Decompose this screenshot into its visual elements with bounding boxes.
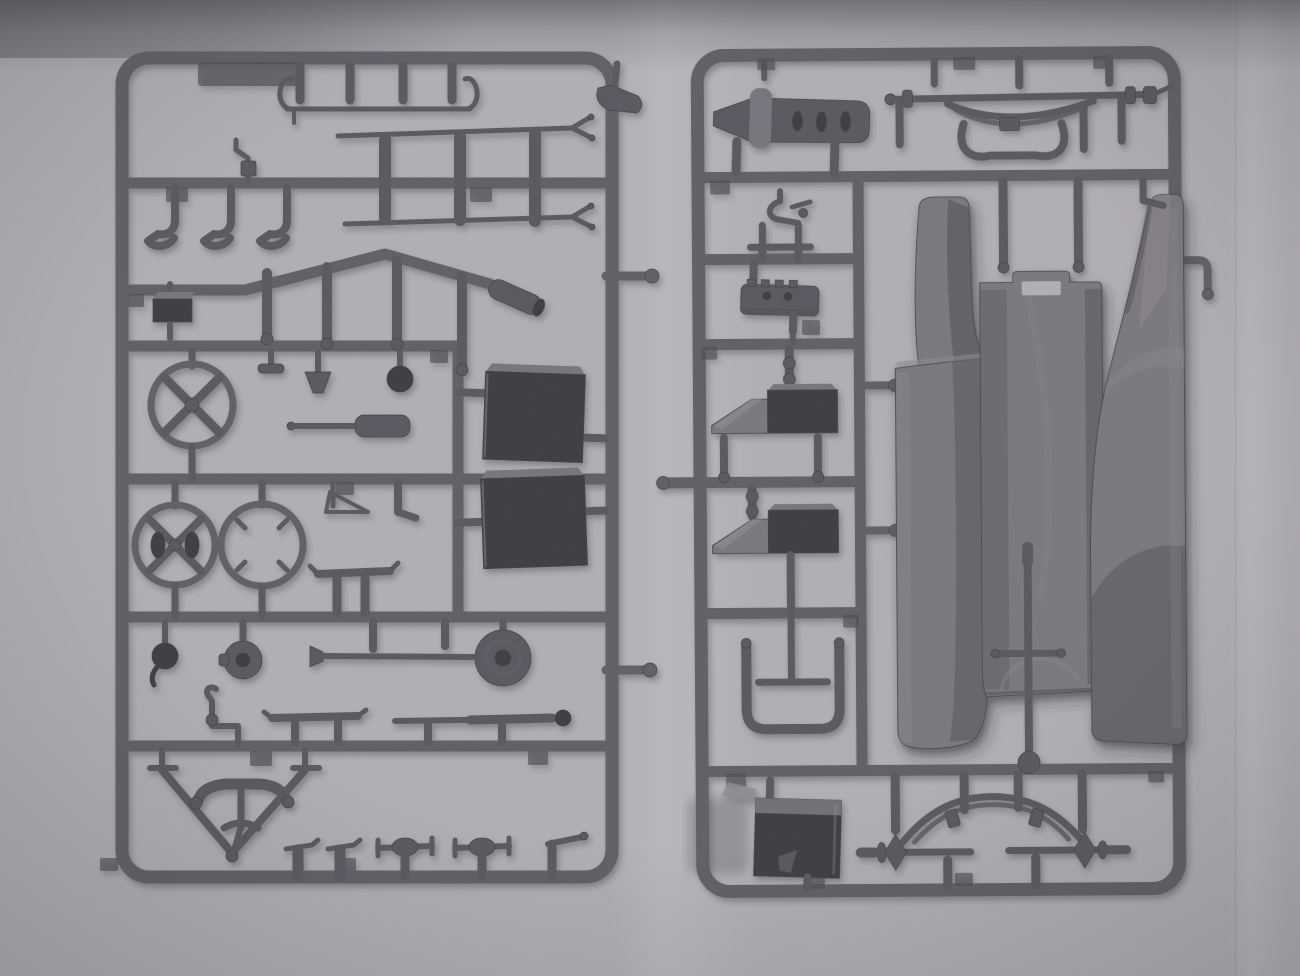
vignette	[0, 0, 1300, 976]
photo-canvas	[0, 0, 1300, 976]
photo-model-kit-sprues	[0, 0, 1300, 976]
